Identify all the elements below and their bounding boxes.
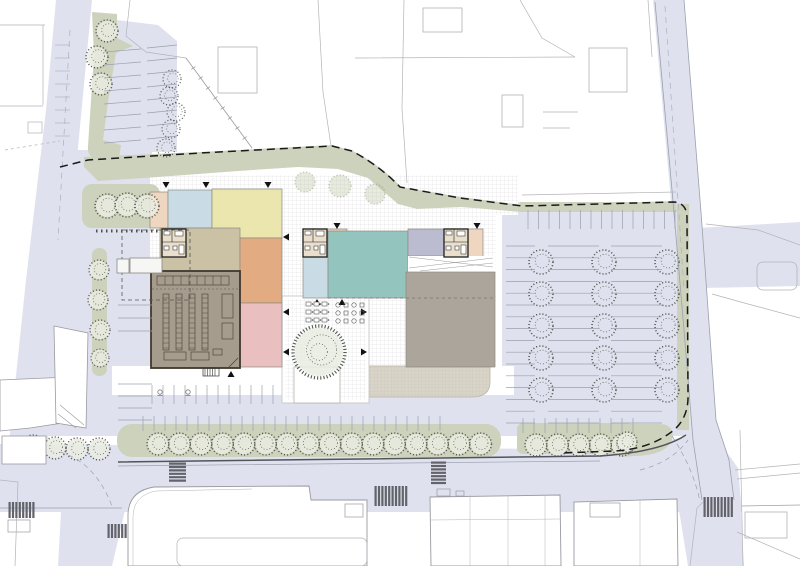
restroom-fixture (173, 246, 177, 250)
road-stub-west (58, 458, 134, 566)
fence-line (186, 58, 252, 148)
terrace-hatch (368, 366, 490, 397)
restroom-fixture (457, 231, 465, 236)
site-plan-canvas (0, 0, 800, 566)
table (322, 310, 327, 314)
restroom-fixture (461, 245, 466, 254)
context-line-above-green (522, 192, 676, 195)
crosswalk (431, 463, 446, 483)
table (314, 318, 319, 322)
architectural-site-plan (0, 0, 800, 566)
restroom-fixture (314, 246, 318, 250)
restroom-fixture (316, 231, 324, 236)
building-south-b (430, 495, 561, 566)
context-building (589, 48, 627, 92)
block-blue-strip (303, 257, 328, 298)
block-blue-north (168, 190, 212, 228)
tree-outline (365, 184, 385, 204)
context-building (8, 520, 30, 532)
context-building (745, 512, 787, 538)
table (306, 302, 311, 306)
fence (186, 58, 252, 148)
fence-tick (221, 107, 225, 110)
restroom-fixture (179, 245, 184, 254)
chair (328, 319, 330, 321)
supermarket (151, 271, 240, 368)
fence-tick (206, 87, 210, 90)
restroom-fixture (164, 246, 169, 250)
crosswalk (705, 497, 732, 517)
chair (320, 319, 322, 321)
block-teal (328, 231, 408, 298)
restroom-fixture (305, 231, 311, 235)
chair (320, 303, 322, 305)
road-edge-right (742, 505, 800, 506)
restroom-fixture (164, 231, 170, 235)
restroom-fixture (305, 246, 310, 250)
restroom-fixture (446, 231, 452, 235)
context-lines-e1 (543, 112, 578, 128)
context-building (28, 122, 42, 133)
tree-canopy (136, 195, 158, 217)
parcel-line-n3 (402, 0, 407, 183)
parcel-lines-nw (0, 25, 45, 106)
block-gray (406, 272, 495, 367)
restroom-fixture (446, 246, 451, 250)
fence-tick (199, 77, 203, 80)
block-lavender (408, 229, 444, 256)
chair (312, 311, 314, 313)
tree (365, 184, 385, 204)
tree (295, 172, 315, 192)
table (322, 318, 327, 322)
restroom-fixture (175, 231, 183, 236)
tree-outline (295, 172, 315, 192)
chair (312, 303, 314, 305)
chair (328, 311, 330, 313)
courtyard-tables-west (306, 302, 329, 322)
table (314, 310, 319, 314)
parcel-line-n4 (355, 0, 652, 58)
delivery-truck (117, 258, 162, 273)
truck-cab (117, 259, 129, 273)
context-building (218, 47, 257, 93)
fence-tick (228, 117, 232, 120)
tree-canopy (96, 195, 118, 217)
fence-tick (235, 127, 239, 130)
fence-tick (243, 137, 247, 140)
tree-outline (329, 175, 351, 197)
block-pink (240, 303, 282, 367)
context-building-sw2 (54, 326, 88, 428)
table (322, 302, 327, 306)
tree (329, 175, 351, 197)
truck-body (130, 258, 162, 273)
restroom-fixture (320, 245, 325, 254)
table (306, 310, 311, 314)
block-orange (240, 238, 282, 303)
table (306, 318, 311, 322)
chair (320, 311, 322, 313)
chair (328, 303, 330, 305)
table (314, 302, 319, 306)
context-building (502, 95, 523, 127)
restroom-unit (303, 229, 327, 257)
parcel-line-n2 (318, 0, 331, 146)
restroom-unit (162, 229, 186, 257)
chair (312, 319, 314, 321)
road-side-east (698, 222, 800, 288)
context-building (2, 436, 46, 464)
tree-canopy (295, 328, 343, 376)
context-building (423, 8, 462, 32)
building-south-c (574, 499, 678, 566)
fence-tick (191, 67, 195, 70)
restroom-fixture (455, 246, 459, 250)
restroom-unit (444, 229, 468, 257)
fence-tick (213, 97, 217, 100)
